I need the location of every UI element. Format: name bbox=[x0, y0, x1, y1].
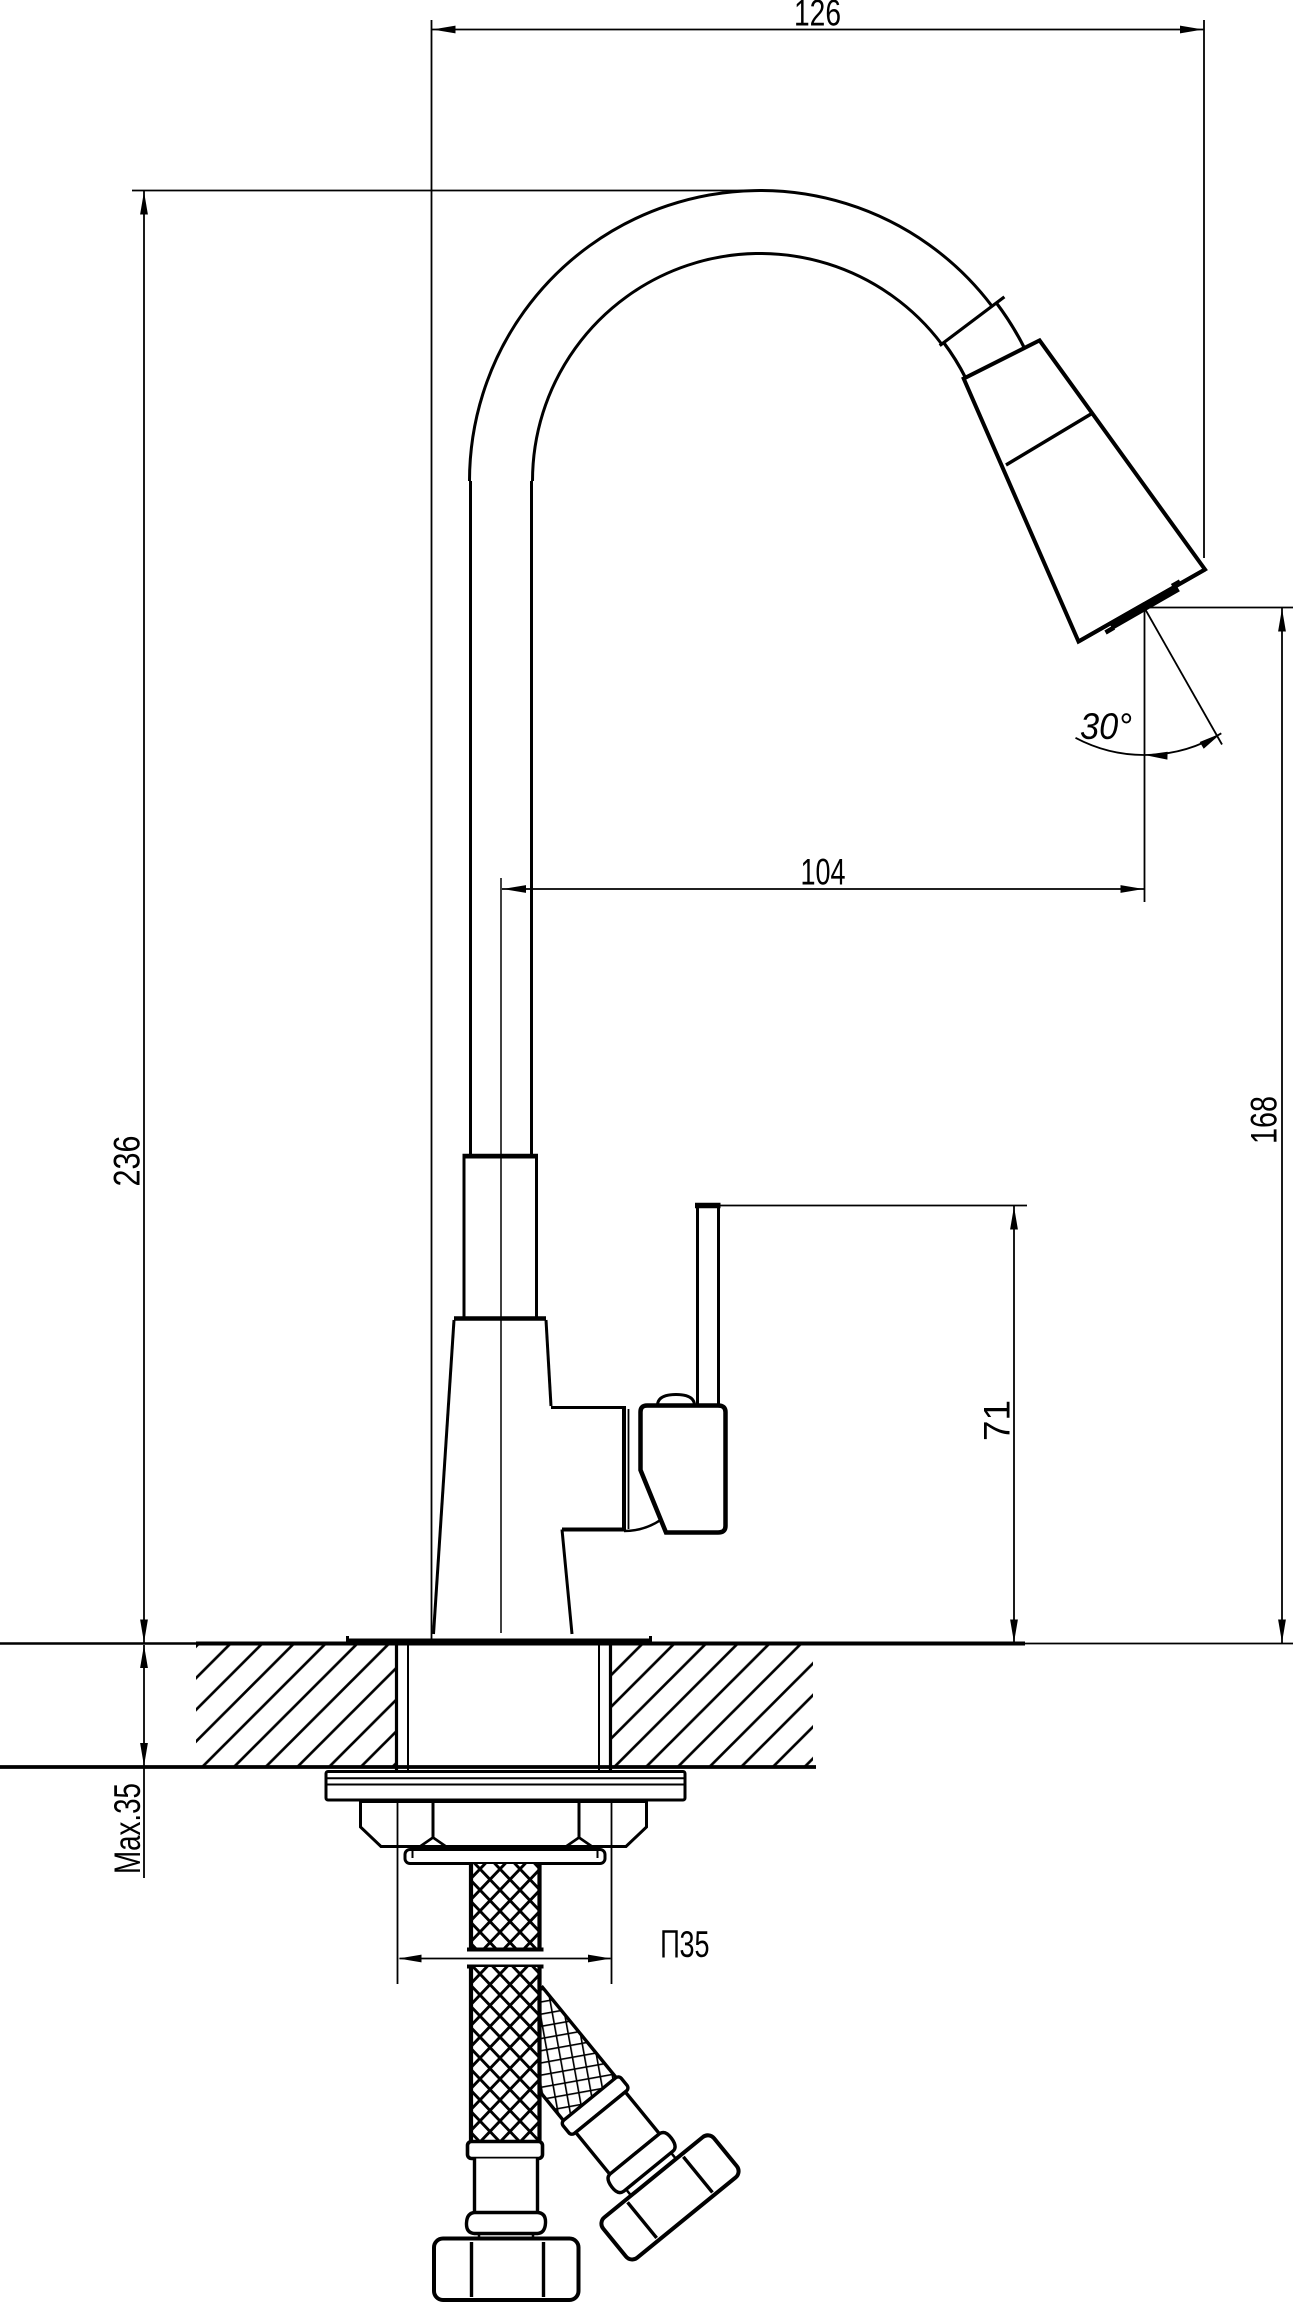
svg-text:104: 104 bbox=[801, 852, 846, 893]
svg-text:71: 71 bbox=[977, 1400, 1018, 1441]
svg-text:236: 236 bbox=[107, 1136, 148, 1187]
svg-text:35: 35 bbox=[680, 1924, 710, 1965]
svg-text:126: 126 bbox=[794, 0, 841, 34]
svg-text:168: 168 bbox=[1244, 1096, 1285, 1144]
svg-text:30°: 30° bbox=[1080, 706, 1132, 747]
svg-text:Max.35: Max.35 bbox=[107, 1783, 148, 1874]
